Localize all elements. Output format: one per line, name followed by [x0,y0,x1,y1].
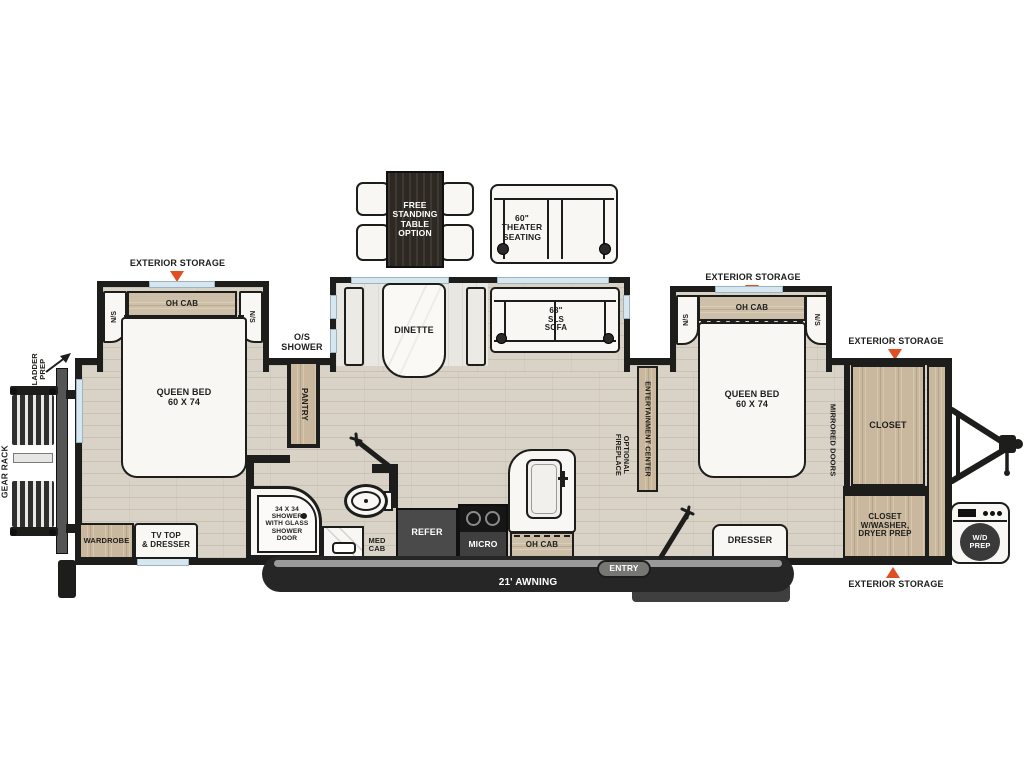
bedroom-door-swing [661,507,693,557]
bathroom-door-swing [351,434,389,466]
ladder-prep-arrow-icon [46,353,71,372]
floorplan-canvas: FREE STANDING TABLE OPTION 60" THEATER S… [0,0,1024,768]
annotations-overlay [0,0,1024,768]
trailer-hitch [952,410,1023,481]
